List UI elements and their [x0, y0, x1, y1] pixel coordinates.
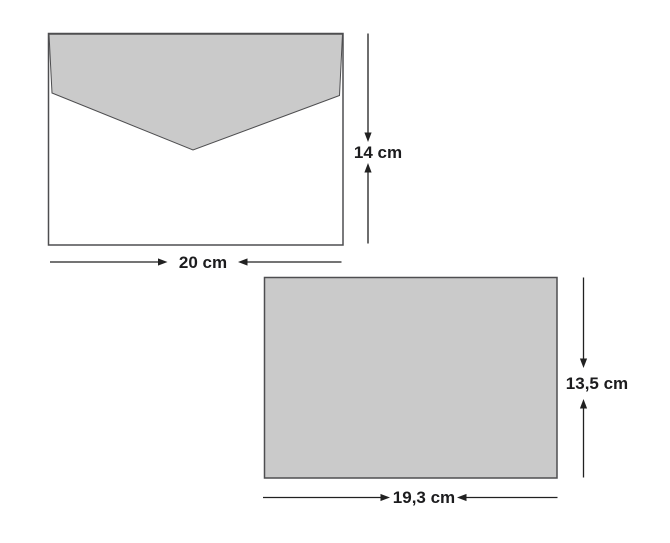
card-body [265, 278, 558, 479]
envelope-width-dimension: 20 cm [50, 253, 342, 272]
arrow-left-icon [238, 258, 248, 265]
card-width-dimension: 19,3 cm [263, 488, 558, 507]
envelope-height-dimension: 14 cm [354, 34, 402, 244]
envelope-width-label: 20 cm [179, 253, 227, 272]
arrow-right-icon [158, 258, 168, 265]
card-width-label: 19,3 cm [393, 488, 455, 507]
arrow-down-icon [364, 133, 371, 143]
envelope-card-diagram: 14 cm 20 cm 13,5 cm 19,3 cm [0, 0, 670, 543]
card-figure [265, 278, 558, 479]
envelope-figure [49, 34, 344, 246]
card-height-label: 13,5 cm [566, 374, 628, 393]
arrow-right-icon [381, 494, 391, 501]
arrow-up-icon [364, 163, 371, 173]
envelope-height-label: 14 cm [354, 143, 402, 162]
arrow-left-icon [457, 494, 467, 501]
diagram-canvas: 14 cm 20 cm 13,5 cm 19,3 cm [0, 0, 670, 543]
arrow-up-icon [580, 399, 587, 409]
arrow-down-icon [580, 359, 587, 369]
card-height-dimension: 13,5 cm [566, 278, 628, 478]
